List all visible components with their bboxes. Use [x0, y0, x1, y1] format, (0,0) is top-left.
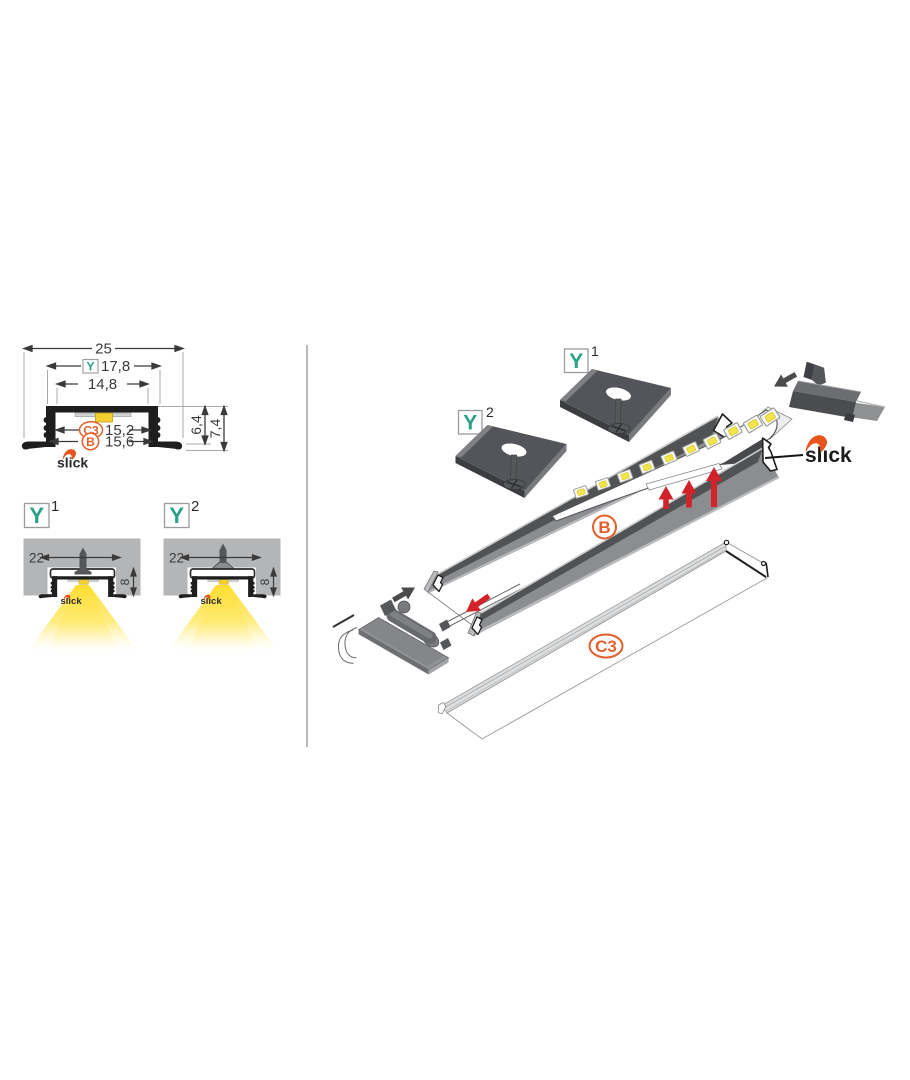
- svg-text:15,6: 15,6: [105, 434, 134, 451]
- svg-text:2: 2: [486, 404, 494, 420]
- svg-text:14,8: 14,8: [88, 376, 117, 393]
- svg-text:22: 22: [169, 551, 184, 566]
- svg-text:Y: Y: [463, 411, 477, 434]
- svg-text:Y: Y: [29, 503, 44, 528]
- svg-text:slick: slick: [61, 596, 83, 607]
- svg-text:8: 8: [118, 578, 132, 585]
- svg-text:22: 22: [29, 551, 44, 566]
- svg-text:2: 2: [191, 498, 199, 515]
- svg-text:Y: Y: [169, 503, 184, 528]
- svg-text:8: 8: [258, 578, 272, 585]
- svg-text:1: 1: [51, 498, 59, 515]
- svg-text:C3: C3: [595, 637, 617, 656]
- svg-text:1: 1: [591, 343, 599, 359]
- svg-text:7,4: 7,4: [207, 419, 223, 439]
- svg-text:Y: Y: [569, 350, 583, 373]
- svg-text:Y: Y: [86, 360, 94, 374]
- svg-text:slick: slick: [805, 444, 852, 467]
- svg-text:25: 25: [95, 341, 112, 358]
- svg-text:slick: slick: [201, 596, 223, 607]
- svg-text:B: B: [598, 518, 610, 537]
- svg-text:6,4: 6,4: [188, 415, 204, 435]
- svg-text:17,8: 17,8: [101, 358, 130, 375]
- svg-text:B: B: [86, 435, 95, 449]
